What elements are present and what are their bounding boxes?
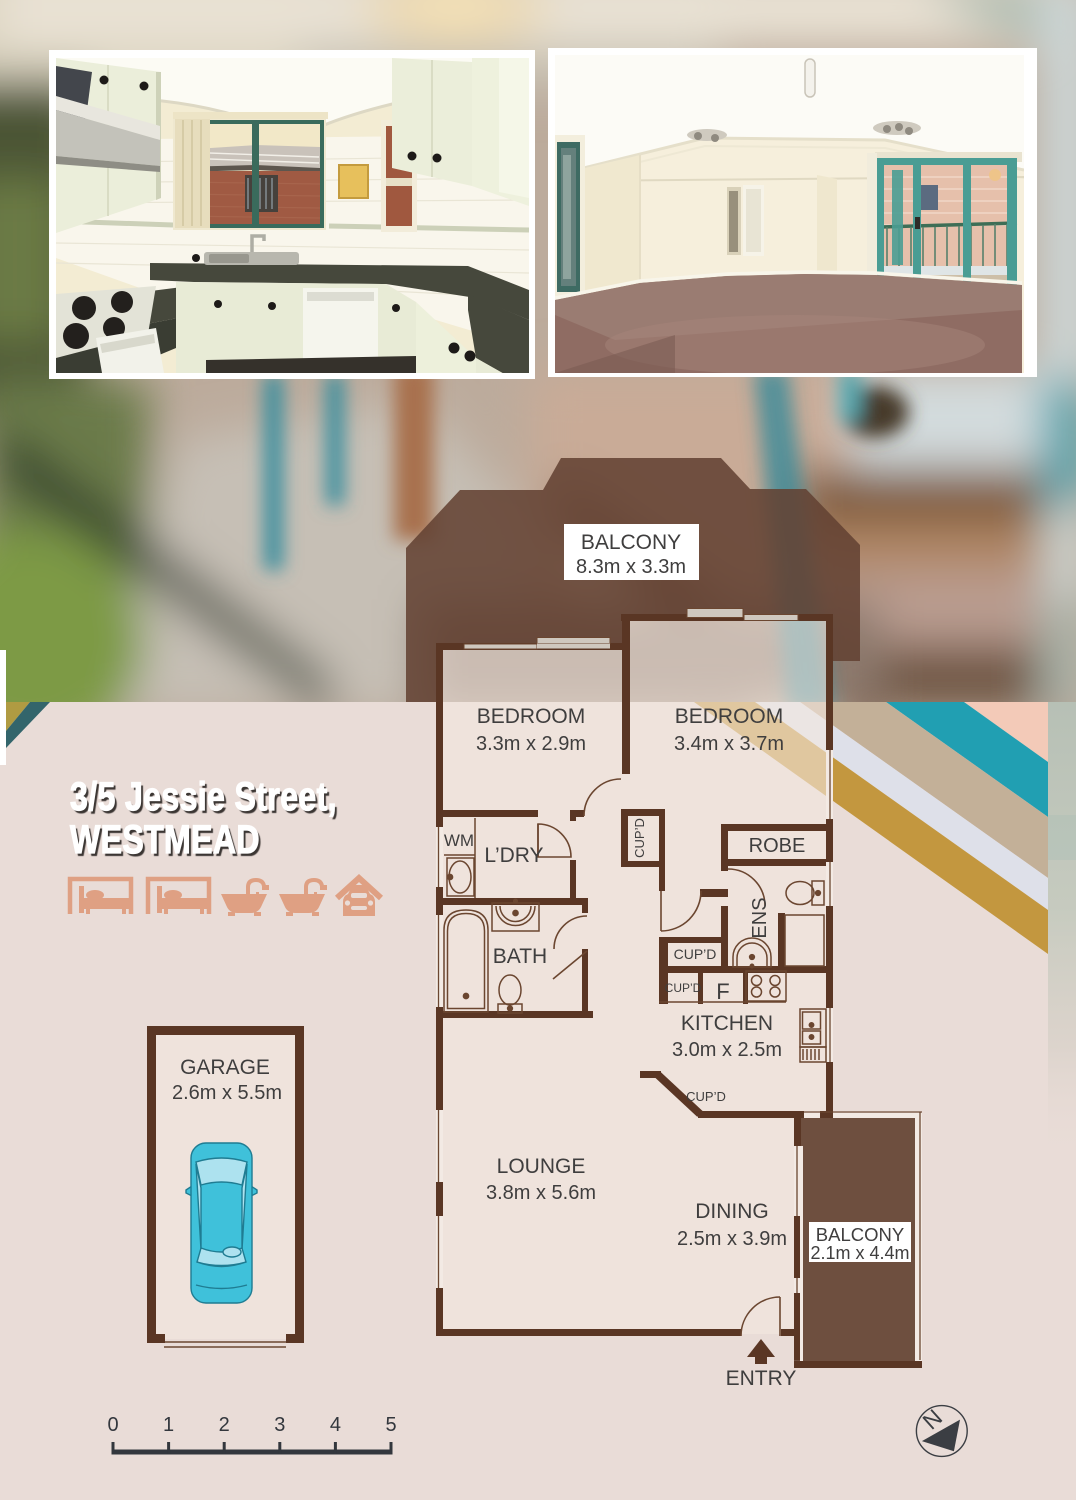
svg-text:BEDROOM: BEDROOM: [477, 705, 586, 728]
svg-text:1: 1: [163, 1414, 174, 1436]
svg-text:BALCONY: BALCONY: [816, 1224, 904, 1245]
svg-text:DINING: DINING: [695, 1200, 769, 1223]
svg-text:CUP’D: CUP’D: [665, 981, 702, 995]
svg-text:CUP’D: CUP’D: [674, 946, 717, 962]
svg-text:2.5m x 3.9m: 2.5m x 3.9m: [677, 1228, 787, 1250]
svg-text:5: 5: [385, 1414, 396, 1436]
svg-text:2: 2: [219, 1414, 230, 1436]
svg-text:ROBE: ROBE: [749, 835, 806, 857]
svg-text:L’DRY: L’DRY: [484, 844, 543, 867]
svg-text:BEDROOM: BEDROOM: [675, 705, 784, 728]
svg-text:BALCONY: BALCONY: [581, 531, 681, 554]
svg-text:KITCHEN: KITCHEN: [681, 1012, 773, 1035]
svg-text:3.4m x 3.7m: 3.4m x 3.7m: [674, 733, 784, 755]
svg-text:8.3m x 3.3m: 8.3m x 3.3m: [576, 556, 686, 578]
svg-text:WM: WM: [444, 831, 474, 850]
svg-text:2.6m x 5.5m: 2.6m x 5.5m: [172, 1082, 282, 1104]
svg-text:F: F: [716, 979, 729, 1004]
svg-text:GARAGE: GARAGE: [180, 1056, 270, 1079]
svg-text:3.8m x 5.6m: 3.8m x 5.6m: [486, 1182, 596, 1204]
svg-text:ENS: ENS: [749, 897, 771, 938]
svg-text:2.1m x 4.4m: 2.1m x 4.4m: [810, 1243, 909, 1263]
svg-text:LOUNGE: LOUNGE: [497, 1155, 586, 1178]
svg-text:CUP’D: CUP’D: [686, 1089, 726, 1104]
svg-text:3.3m x 2.9m: 3.3m x 2.9m: [476, 733, 586, 755]
svg-text:ENTRY: ENTRY: [726, 1367, 797, 1390]
svg-text:3.0m x 2.5m: 3.0m x 2.5m: [672, 1039, 782, 1061]
svg-text:0: 0: [107, 1414, 118, 1436]
svg-text:3: 3: [274, 1414, 285, 1436]
svg-text:4: 4: [330, 1414, 341, 1436]
svg-text:BATH: BATH: [493, 945, 547, 968]
svg-text:CUP’D: CUP’D: [632, 818, 647, 858]
